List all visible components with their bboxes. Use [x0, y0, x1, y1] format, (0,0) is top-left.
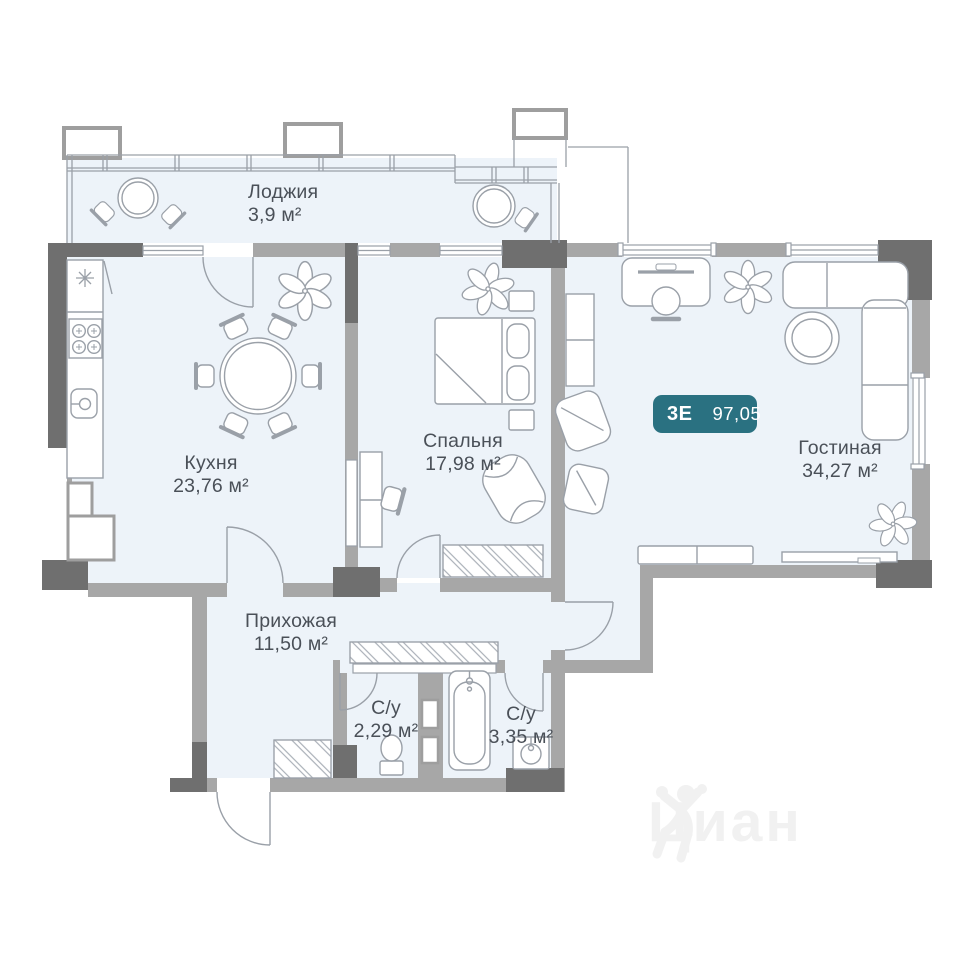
room-name: С/у — [489, 703, 554, 726]
living-armchair-2 — [562, 462, 611, 515]
loggia-table-1 — [118, 178, 158, 218]
room-area: 11,50 м² — [245, 633, 337, 656]
bed — [435, 318, 535, 404]
room-name: Лоджия — [248, 181, 318, 204]
wardrobe — [566, 294, 594, 386]
room-name: Спальня — [423, 430, 503, 453]
room-area: 17,98 м² — [423, 453, 503, 476]
room-area: 2,29 м² — [354, 720, 419, 743]
room-label-bathroom-small: С/у 2,29 м² — [354, 697, 419, 743]
room-label-hallway: Прихожая 11,50 м² — [245, 610, 337, 656]
room-area: 34,27 м² — [798, 460, 881, 483]
window-living-2 — [786, 243, 878, 256]
exterior-protrusions — [64, 110, 566, 158]
bedroom-dresser — [360, 452, 382, 547]
loggia-table-2 — [473, 185, 515, 227]
room-label-bathroom-large: С/у 3,35 м² — [489, 703, 554, 749]
room-label-kitchen: Кухня 23,76 м² — [173, 452, 249, 498]
window-kitchen — [143, 246, 203, 255]
coffee-table — [785, 312, 839, 364]
room-name: Гостиная — [798, 437, 881, 460]
stove-icon — [69, 319, 102, 358]
tv-console — [638, 546, 753, 564]
apartment-total-area: 97,05 — [702, 403, 761, 425]
nightstand — [509, 291, 534, 311]
brand-watermark: Циан — [648, 782, 803, 862]
shelf — [782, 552, 897, 563]
room-label-bedroom: Спальня 17,98 м² — [423, 430, 503, 476]
room-area: 23,76 м² — [173, 475, 249, 498]
nightstand — [509, 410, 534, 430]
room-label-loggia: Лоджия 3,9 м² — [248, 181, 318, 227]
dining-chair — [302, 364, 320, 388]
window-living-1 — [618, 243, 716, 256]
window-living-right — [911, 373, 925, 469]
room-name: С/у — [354, 697, 419, 720]
bathtub-icon — [449, 671, 490, 770]
room-area: 3,35 м² — [489, 726, 554, 749]
window-bedroom-1 — [358, 246, 390, 255]
room-name: Кухня — [173, 452, 249, 475]
apartment-badge: 3Е 97,05 — [653, 395, 757, 433]
pocket-door — [346, 460, 357, 546]
door-entrance — [217, 792, 270, 845]
window-bedroom-2 — [440, 246, 502, 255]
dining-chair — [196, 364, 214, 388]
room-label-living-room: Гостиная 34,27 м² — [798, 437, 881, 483]
floor-plan: Лоджия 3,9 м² Кухня 23,76 м² Спальня 17,… — [0, 0, 960, 960]
sink-icon — [71, 389, 97, 418]
room-name: Прихожая — [245, 610, 337, 633]
dining-table — [220, 338, 296, 414]
person-logo-icon — [648, 782, 714, 866]
apartment-type: 3Е — [653, 403, 702, 426]
room-area: 3,9 м² — [248, 204, 318, 227]
